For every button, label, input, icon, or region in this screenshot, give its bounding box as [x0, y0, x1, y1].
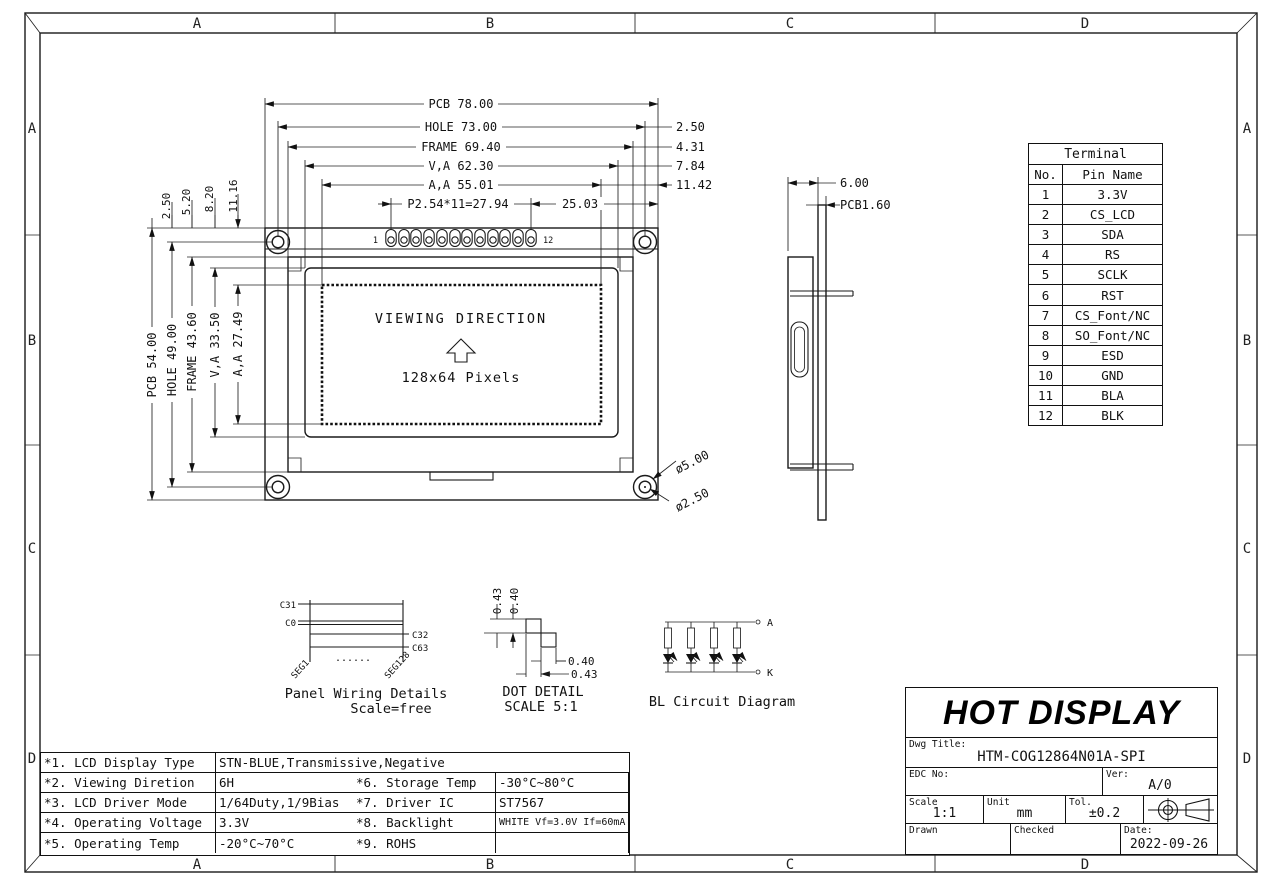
pin-name: 3.3V	[1062, 184, 1162, 204]
viewing-direction-arrow-icon	[447, 339, 475, 362]
spec-table: *1. LCD Display Type STN-BLUE,Transmissi…	[40, 752, 630, 856]
dim-side-depth: 6.00	[840, 176, 869, 190]
spec-value: -20°C~70°C	[216, 833, 353, 853]
scale-value: 1:1	[906, 806, 983, 821]
wiring-dots: ......	[335, 653, 371, 664]
wiring-seg1-label: SEG1	[290, 658, 312, 681]
pin-no: 6	[1029, 284, 1062, 304]
connector-pads	[386, 230, 536, 247]
pin-no: 3	[1029, 224, 1062, 244]
pin12-label: 12	[543, 236, 553, 246]
pin-no: 11	[1029, 385, 1062, 405]
wiring-c31-label: C31	[280, 601, 296, 611]
dim-hole-dia-inner: ø2.50	[673, 486, 712, 515]
dim-va-width: V,A 62.30	[428, 159, 493, 173]
bl-circuit: A K BL Circuit Diagram	[649, 618, 795, 710]
title-block: HOT DISPLAY Dwg Title: HTM-COG12864N01A-…	[905, 687, 1218, 855]
spec-label: *6. Storage Temp	[353, 773, 496, 793]
dim-25-03: 25.03	[562, 197, 598, 211]
hole-callouts: ø5.00 ø2.50	[650, 448, 711, 515]
dim-offset-7-84: 7.84	[676, 159, 705, 173]
dim-offtop-2-50: 2.50	[160, 193, 173, 220]
zone-letter: A	[193, 857, 202, 873]
wiring-seg128-label: SEG128	[383, 650, 412, 681]
dim-offtop-5-20: 5.20	[180, 189, 193, 216]
zone-letter: A	[28, 121, 37, 137]
zone-letter: D	[1081, 16, 1089, 32]
zone-letter: D	[28, 751, 36, 767]
spec-label: *4. Operating Voltage	[41, 813, 216, 833]
pin-no: 8	[1029, 325, 1062, 345]
pin-name: BLA	[1062, 385, 1162, 405]
spec-value	[496, 833, 629, 853]
hole-center-dot	[644, 486, 646, 488]
dim-frame-width: FRAME 69.40	[421, 140, 500, 154]
dot-dim-right-1: 0.40	[568, 655, 595, 668]
pin1-label: 1	[373, 236, 378, 246]
spec-value: ST7567	[496, 793, 629, 813]
terminal-table-title: Terminal	[1029, 144, 1162, 164]
tolerance-value: ±0.2	[1066, 806, 1143, 821]
spec-value: -30°C~80°C	[496, 773, 629, 793]
panel-wiring-scale: Scale=free	[350, 701, 431, 717]
pin-name: RS	[1062, 244, 1162, 264]
panel-wiring-caption: Panel Wiring Details	[285, 686, 448, 702]
pin-name: BLK	[1062, 405, 1162, 425]
zone-letter: B	[486, 16, 494, 32]
dim-hole-height: HOLE 49.00	[165, 324, 179, 396]
zone-letter: C	[1243, 541, 1251, 557]
dot-dim-top-2: 0.40	[508, 588, 521, 615]
checked-label: Checked	[1014, 825, 1054, 836]
pin-no: 4	[1029, 244, 1062, 264]
pin-no: 7	[1029, 305, 1062, 325]
date-value: 2022-09-26	[1121, 837, 1217, 852]
date-label: Date:	[1124, 825, 1153, 836]
side-body	[788, 257, 813, 468]
terminal-col-pin: Pin Name	[1062, 164, 1162, 184]
side-pcb	[818, 205, 826, 520]
dim-va-height: V,A 33.50	[208, 312, 222, 377]
bl-anode-label: A	[767, 618, 773, 629]
pixels-label: 128x64 Pixels	[402, 370, 521, 386]
zone-letter: C	[786, 16, 794, 32]
pin-name: SDA	[1062, 224, 1162, 244]
zone-letter: D	[1081, 857, 1089, 873]
pin-name: SCLK	[1062, 264, 1162, 284]
metal-frame	[288, 257, 633, 472]
terminal-col-no: No.	[1029, 164, 1062, 184]
unit-value: mm	[984, 806, 1065, 821]
side-view: 6.00 PCB1.60	[788, 176, 891, 520]
viewing-direction-label: VIEWING DIRECTION	[375, 311, 547, 327]
edc-no-label: EDC No:	[909, 769, 949, 780]
dim-pcb-width: PCB 78.00	[428, 97, 493, 111]
spec-value: 6H	[216, 773, 353, 793]
zone-letter: B	[486, 857, 494, 873]
pin-name: SO_Font/NC	[1062, 325, 1162, 345]
dim-hole-dia-outer: ø5.00	[673, 448, 712, 477]
company-logo: HOT DISPLAY	[906, 688, 1217, 738]
pin-no: 1	[1029, 184, 1062, 204]
pin-name: GND	[1062, 365, 1162, 385]
wiring-c63-label: C63	[412, 644, 428, 654]
zone-letter: B	[1243, 333, 1251, 349]
zone-letter: A	[193, 16, 202, 32]
pin-no: 12	[1029, 405, 1062, 425]
pin-name: CS_LCD	[1062, 204, 1162, 224]
spec-label: *3. LCD Driver Mode	[41, 793, 216, 813]
spec-label: *8. Backlight	[353, 813, 496, 833]
dim-offtop-8-20: 8.20	[203, 186, 216, 213]
dim-hole-width: HOLE 73.00	[425, 120, 497, 134]
dim-pcb-thickness: PCB1.60	[840, 198, 891, 212]
side-component	[791, 322, 808, 377]
pin-no: 9	[1029, 345, 1062, 365]
dim-frame-height: FRAME 43.60	[185, 312, 199, 391]
wiring-c0-label: C0	[285, 619, 296, 629]
dim-pcb-height: PCB 54.00	[145, 332, 159, 397]
dot-dim-right-2: 0.43	[571, 668, 598, 681]
dot-detail-scale: SCALE 5:1	[504, 699, 577, 715]
projection-symbol-icon	[1146, 797, 1216, 823]
dim-offset-4-31: 4.31	[676, 140, 705, 154]
wiring-c32-label: C32	[412, 631, 428, 641]
pin-no: 2	[1029, 204, 1062, 224]
drawn-label: Drawn	[909, 825, 938, 836]
zone-letter: A	[1243, 121, 1252, 137]
dwg-title-value: HTM-COG12864N01A-SPI	[906, 749, 1217, 765]
active-area	[322, 285, 601, 424]
spec-value: STN-BLUE,Transmissive,Negative	[216, 753, 629, 773]
pin-no: 5	[1029, 264, 1062, 284]
spec-value: 3.3V	[216, 813, 353, 833]
front-view: 1 12 VIEWING DIRECTION 128x64 Pixels	[265, 228, 658, 500]
zone-letter: D	[1243, 751, 1251, 767]
dim-offset-2-50: 2.50	[676, 120, 705, 134]
spec-label: *1. LCD Display Type	[41, 753, 216, 773]
terminal-table: Terminal No. Pin Name 13.3V 2CS_LCD 3SDA…	[1028, 143, 1163, 426]
pin-no: 10	[1029, 365, 1062, 385]
dim-aa-width: A,A 55.01	[428, 178, 493, 192]
dot-detail-caption: DOT DETAIL	[502, 684, 583, 700]
dot-dim-top-1: 0.43	[491, 588, 504, 615]
bottom-tab	[430, 472, 493, 480]
spec-label: *2. Viewing Diretion	[41, 773, 216, 793]
dim-aa-height: A,A 27.49	[231, 311, 245, 376]
pin-name: ESD	[1062, 345, 1162, 365]
pin-name: RST	[1062, 284, 1162, 304]
spec-value: 1/64Duty,1/9Bias	[216, 793, 353, 813]
spec-value: WHITE Vf=3.0V If=60mA	[496, 813, 629, 833]
zone-letter: C	[786, 857, 794, 873]
panel-wiring-details: C31 C0 C32 C63 SEG1 SEG128 ...... Panel …	[280, 600, 448, 717]
display-bezel	[305, 268, 618, 437]
drawing-sheet: A B C D A B C D A B C D A B C D 1 12 VIE…	[0, 0, 1263, 892]
zone-letter: B	[28, 333, 36, 349]
dim-offset-11-42: 11.42	[676, 178, 712, 192]
spec-label: *9. ROHS	[353, 833, 496, 853]
spec-label: *7. Driver IC	[353, 793, 496, 813]
dim-pad-pitch: P2.54*11=27.94	[407, 197, 508, 211]
bl-circuit-caption: BL Circuit Diagram	[649, 694, 795, 710]
pin-name: CS_Font/NC	[1062, 305, 1162, 325]
bl-cathode-label: K	[767, 668, 773, 679]
zone-letter: C	[28, 541, 36, 557]
dot-detail: 0.43 0.40 0.40 0.43 DOT DETAIL SCALE 5:1	[484, 588, 598, 715]
dim-offtop-11-16: 11.16	[227, 179, 240, 212]
spec-label: *5. Operating Temp	[41, 833, 216, 853]
version-value: A/0	[1103, 778, 1217, 793]
